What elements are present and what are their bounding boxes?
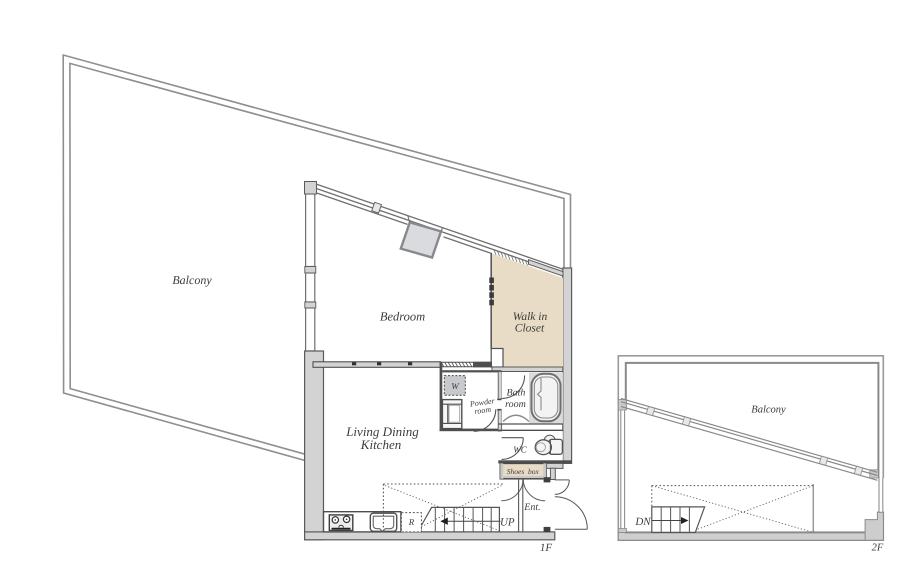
svg-text:room: room	[505, 399, 526, 410]
svg-text:Walk in: Walk in	[513, 311, 548, 323]
svg-text:DN: DN	[634, 516, 651, 528]
svg-text:Closet: Closet	[515, 323, 545, 335]
svg-text:Kitchen: Kitchen	[360, 437, 401, 452]
svg-text:2F: 2F	[872, 543, 884, 554]
svg-text:1F: 1F	[540, 542, 553, 554]
svg-text:Balcony: Balcony	[172, 273, 212, 287]
svg-text:Ent.: Ent.	[523, 502, 540, 513]
svg-text:UP: UP	[500, 517, 515, 529]
svg-text:Bath: Bath	[507, 387, 526, 398]
svg-text:Balcony: Balcony	[751, 405, 786, 416]
svg-text:WC: WC	[513, 445, 527, 455]
svg-text:Shoes box: Shoes box	[507, 467, 540, 476]
svg-text:R: R	[408, 517, 415, 527]
svg-text:Bedroom: Bedroom	[380, 310, 425, 324]
